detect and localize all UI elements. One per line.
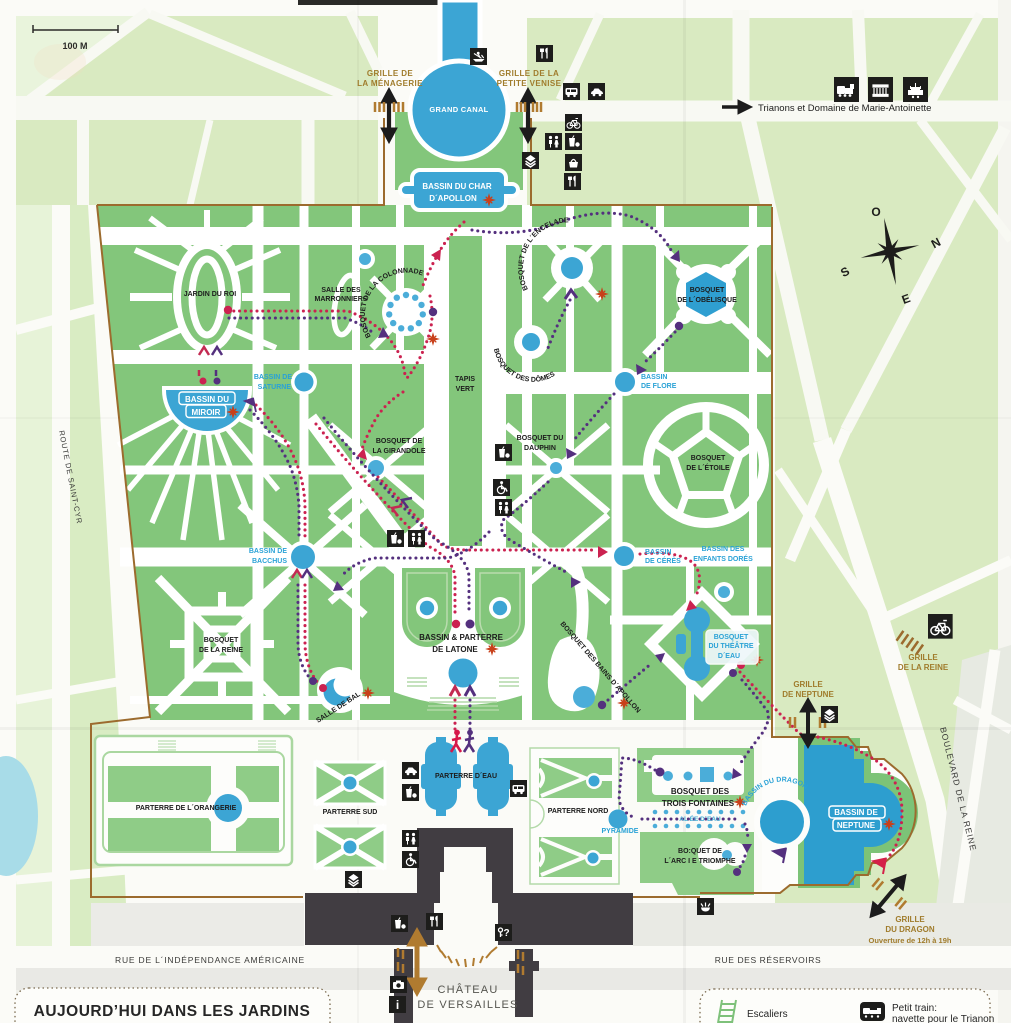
svg-text:BASSIN DU CHAR: BASSIN DU CHAR [422, 182, 492, 191]
svg-text:D´APOLLON: D´APOLLON [429, 194, 477, 203]
svg-text:DE LA REINE: DE LA REINE [898, 663, 949, 672]
svg-text:VERT: VERT [456, 386, 475, 393]
svg-text:BOSQUET DE: BOSQUET DE [376, 438, 423, 445]
svg-text:BACCHUS: BACCHUS [252, 558, 287, 565]
svg-text:SALLE DES: SALLE DES [321, 287, 361, 294]
svg-text:DE LATONE: DE LATONE [432, 645, 478, 654]
svg-text:DE L´ÉTOILE: DE L´ÉTOILE [686, 463, 730, 472]
svg-text:Ouverture de 12h à 19h: Ouverture de 12h à 19h [869, 936, 952, 945]
svg-text:TAPIS: TAPIS [455, 376, 475, 383]
svg-text:L´ARC I E TRIOMPHE: L´ARC I E TRIOMPHE [664, 858, 735, 865]
svg-text:BASSIN DE: BASSIN DE [834, 808, 878, 817]
svg-text:DE CÉRÈS: DE CÉRÈS [645, 556, 681, 565]
svg-text:ENFANTS DORÉS: ENFANTS DORÉS [693, 554, 753, 563]
svg-text:PARTERRE NORD: PARTERRE NORD [548, 808, 609, 815]
svg-text:BASSIN DE: BASSIN DE [254, 374, 292, 381]
svg-text:LA MÉNAGERIE: LA MÉNAGERIE [357, 79, 423, 88]
svg-text:GRILLE: GRILLE [895, 915, 925, 924]
svg-text:PETITE VENISE: PETITE VENISE [497, 79, 562, 88]
svg-text:MARRONNIERS: MARRONNIERS [315, 296, 368, 303]
svg-text:BASSIN: BASSIN [641, 374, 667, 381]
svg-text:Escaliers: Escaliers [747, 1009, 788, 1020]
svg-text:Petit train:: Petit train: [892, 1003, 937, 1014]
svg-text:PARTERRE D´EAU: PARTERRE D´EAU [435, 773, 497, 780]
svg-text:BOSQUET DU: BOSQUET DU [517, 435, 564, 442]
svg-text:DU THÉÂTRE: DU THÉÂTRE [708, 641, 753, 650]
svg-text:BOSQUET: BOSQUET [691, 455, 726, 462]
svg-text:GRILLE: GRILLE [908, 653, 938, 662]
svg-text:BASSIN DES: BASSIN DES [702, 546, 745, 553]
svg-text:O: O [871, 205, 880, 219]
svg-text:AUJOURD’HUI DANS LES JARDINS: AUJOURD’HUI DANS LES JARDINS [34, 1003, 311, 1020]
svg-text:DAUPHIN: DAUPHIN [524, 445, 556, 452]
svg-text:GRILLE DE: GRILLE DE [367, 69, 414, 78]
svg-text:MIROIR: MIROIR [192, 408, 221, 417]
svg-text:PYRAMIDE: PYRAMIDE [602, 828, 639, 835]
svg-text:PARTERRE SUD: PARTERRE SUD [323, 809, 378, 816]
svg-text:BOSQUET: BOSQUET [204, 637, 239, 644]
svg-text:JARDIN DU ROI: JARDIN DU ROI [184, 291, 237, 298]
svg-text:GRILLE: GRILLE [793, 680, 823, 689]
svg-text:BASSIN DU: BASSIN DU [185, 395, 229, 404]
svg-text:100 M: 100 M [62, 41, 87, 51]
svg-text:DE FLORE: DE FLORE [641, 383, 677, 390]
svg-text:DU DRAGON: DU DRAGON [885, 925, 935, 934]
svg-text:LA GIRANDOLE: LA GIRANDOLE [372, 448, 425, 455]
svg-text:GRAND CANAL: GRAND CANAL [429, 105, 488, 114]
svg-text:BO:QUET DE: BO:QUET DE [678, 848, 722, 855]
svg-text:RUE DE L´INDÉPENDANCE AMÉRICAI: RUE DE L´INDÉPENDANCE AMÉRICAINE [115, 955, 305, 965]
svg-text:DE L´OBÉLISQUE: DE L´OBÉLISQUE [677, 295, 737, 304]
svg-text:D´EAU: D´EAU [718, 653, 740, 660]
svg-text:DE NEPTUNE: DE NEPTUNE [782, 690, 834, 699]
svg-text:navette pour le Trianon: navette pour le Trianon [892, 1014, 994, 1023]
svg-text:DE VERSAILLES: DE VERSAILLES [417, 999, 518, 1011]
svg-text:RUE DES RÉSERVOIRS: RUE DES RÉSERVOIRS [715, 955, 822, 965]
svg-text:TROIS FONTAINES: TROIS FONTAINES [662, 799, 735, 808]
svg-text:CHÂTEAU: CHÂTEAU [438, 983, 499, 996]
svg-text:AL ÉE D´EAU: AL ÉE D´EAU [679, 814, 721, 823]
svg-text:BOSQUET: BOSQUET [714, 634, 749, 641]
svg-text:BOSQUET: BOSQUET [690, 287, 725, 294]
svg-text:BASSIN & PARTERRE: BASSIN & PARTERRE [419, 633, 504, 642]
svg-text:BASSIN DE: BASSIN DE [249, 548, 287, 555]
svg-text:PARTERRE DE L´ORANGERIE: PARTERRE DE L´ORANGERIE [136, 805, 237, 812]
svg-text:NEPTUNE: NEPTUNE [837, 821, 876, 830]
svg-text:GRILLE DE LA: GRILLE DE LA [499, 69, 559, 78]
svg-text:BOSQUET DES: BOSQUET DES [671, 787, 730, 796]
svg-text:BASSIN: BASSIN [645, 549, 671, 556]
svg-text:DE LA REINE: DE LA REINE [199, 647, 243, 654]
svg-text:SATURNE: SATURNE [258, 384, 292, 391]
svg-text:Trianons et Domaine de Marie-A: Trianons et Domaine de Marie-Antoinette [758, 103, 931, 114]
